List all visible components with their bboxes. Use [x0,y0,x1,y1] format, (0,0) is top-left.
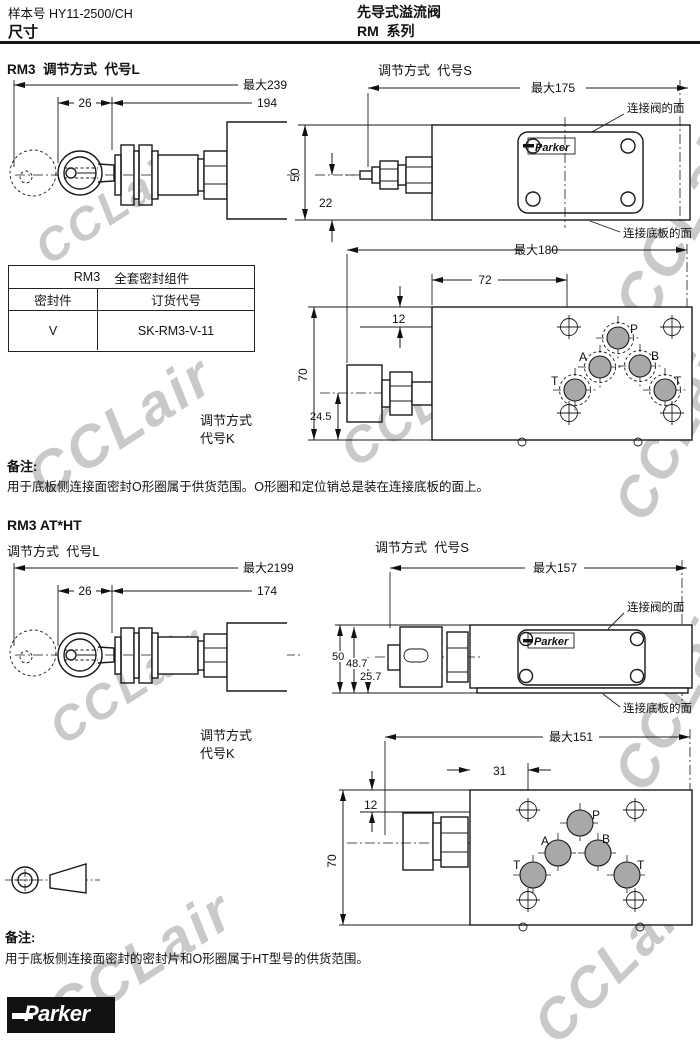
table-title: 全套密封组件 [114,268,189,287]
svg-text:70: 70 [325,854,339,868]
drawing-s1-side: 最大175 Parker 50 22 连接阀的面 [290,55,700,247]
port-p [607,327,629,349]
svg-text:26: 26 [78,96,92,110]
svg-text:P: P [592,808,600,822]
col-seal: 密封件 [9,289,98,310]
seal-kit-table: RM3 全套密封组件 密封件 订货代号 V SK-RM3-V-11 [8,265,255,352]
section1-adjust-s-title: 调节方式 代号S [378,60,472,79]
svg-text:A: A [579,350,587,364]
svg-text:31: 31 [493,764,507,778]
section1-title: RM3 调节方式 代号L [7,58,140,78]
svg-text:最大239: 最大239 [243,78,287,92]
section2-note-text: 用于底板侧连接面密封的密封片和O形圈属于HT型号的供货范围。 [5,948,369,967]
drawing-key-cone [5,855,135,910]
table-column-row: 密封件 订货代号 [9,289,254,311]
svg-text:P: P [630,322,638,336]
svg-text:24.5: 24.5 [310,411,331,423]
knob-end-view [12,867,38,893]
svg-text:25.7: 25.7 [360,671,381,683]
section2-title: RM3 AT*HT [7,517,82,533]
port-t2 [654,379,676,401]
seal-value: V [9,311,98,350]
series-title: RM 系列 [357,21,415,41]
svg-text:A: A [541,834,549,848]
knurled-knob [347,365,432,422]
svg-text:最大2199: 最大2199 [243,561,294,575]
svg-text:T: T [551,374,559,388]
svg-text:B: B [651,349,659,363]
drawing-s2-side: 最大157 Parker 50 48.7 25.7 [320,548,700,728]
section2-adjust-k-label: 调节方式 代号K [200,727,252,763]
drawing-s1-ports: 最大180 72 12 70 24.5 [290,230,700,460]
svg-text:最大175: 最大175 [531,81,575,95]
svg-text:最大180: 最大180 [514,243,558,257]
valve-body-section [227,122,287,219]
section1-note-text: 用于底板侧连接面密封O形圈属于供货范围。O形圈和定位销总是装在连接底板的面上。 [7,476,489,495]
valve-body [470,625,692,693]
order-code: SK-RM3-V-11 [98,311,254,350]
table-header-row: RM3 全套密封组件 [9,266,254,289]
svg-text:最大157: 最大157 [533,561,577,575]
valve-body-section [227,623,287,691]
svg-text:48.7: 48.7 [346,658,367,670]
header-rule [0,41,700,44]
svg-text:T: T [513,858,521,872]
knurled-knob [403,813,468,870]
svg-text:22: 22 [319,196,333,210]
adjuster-screw [345,157,435,193]
catalog-number: 样本号 HY11-2500/CH [8,3,133,22]
drawing-s2-adjust-l: 最大2199 26 174 [0,548,350,718]
section1-adjust-k-label: 调节方式 代号K [200,412,252,448]
svg-text:194: 194 [257,96,277,110]
svg-text:70: 70 [296,368,310,382]
svg-text:T: T [674,374,682,388]
parker-logo-text: Parker [24,1001,90,1027]
parker-logo: Parker [7,997,115,1033]
port-a [589,356,611,378]
section2-note-label: 备注: [5,927,35,946]
section2-adjust-s-title: 调节方式 代号S [375,537,469,556]
svg-text:连接底板的面: 连接底板的面 [623,701,692,715]
port-b [629,355,651,377]
port-t1 [520,862,546,888]
section1-note-label: 备注: [7,456,37,475]
svg-text:T: T [637,858,645,872]
section2-adjust-l-title: 调节方式 代号L [7,541,99,560]
drawing-s2-ports: 最大151 31 12 70 P A [285,715,700,947]
knurled-knob [115,628,227,683]
svg-text:50: 50 [288,168,302,182]
port-t1 [564,379,586,401]
svg-text:12: 12 [392,312,406,326]
svg-text:50: 50 [332,651,344,663]
product-title: 先导式溢流阀 [357,2,441,22]
table-model: RM3 [74,270,100,284]
key-lock-icon [10,630,114,677]
svg-text:72: 72 [478,273,492,287]
svg-text:连接阀的面: 连接阀的面 [627,101,685,115]
table-value-row: V SK-RM3-V-11 [9,311,254,350]
svg-text:Parker: Parker [535,142,570,154]
svg-text:Parker: Parker [534,636,569,648]
svg-text:B: B [602,832,610,846]
port-p [567,810,593,836]
key-lock-icon [10,150,114,196]
svg-text:26: 26 [78,584,92,598]
svg-text:最大151: 最大151 [549,730,593,744]
page-title: 尺寸 [8,21,38,42]
adjuster-knob [375,627,480,687]
svg-text:连接阀的面: 连接阀的面 [627,600,685,614]
col-order: 订货代号 [98,289,254,310]
svg-text:174: 174 [257,584,277,598]
svg-text:12: 12 [364,798,378,812]
cone-tool-icon [50,864,86,893]
